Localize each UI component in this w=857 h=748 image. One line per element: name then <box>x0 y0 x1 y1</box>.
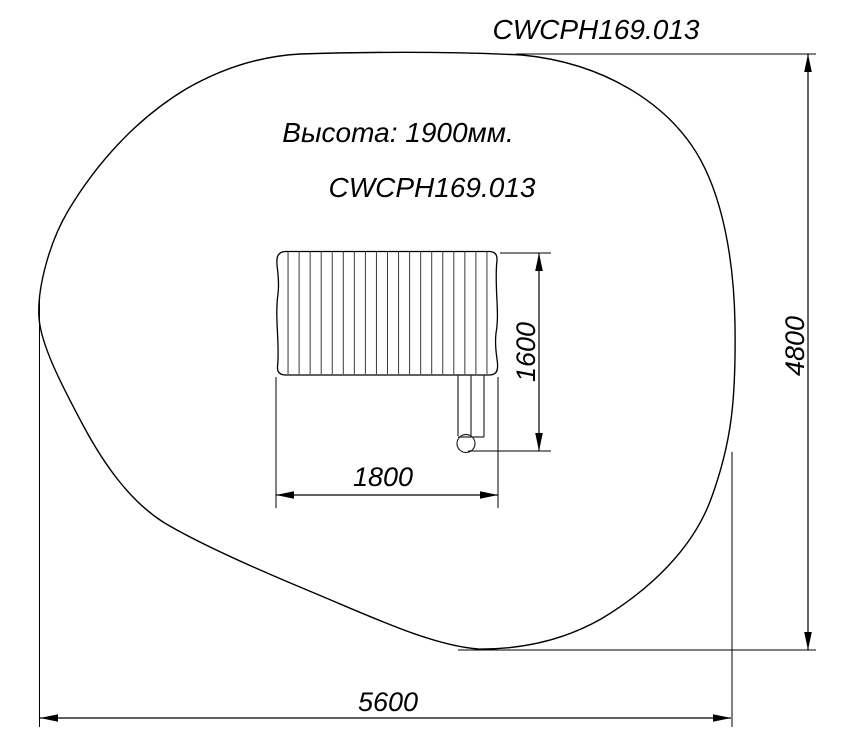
arrow-1600-up <box>535 253 543 271</box>
arrow-4800-down <box>804 632 812 650</box>
arrow-1800-left <box>276 491 294 499</box>
arrow-5600-left <box>40 714 58 722</box>
dimension-lines <box>40 54 812 722</box>
extension-lines <box>40 54 817 727</box>
drawing-code-center: CWCPH169.013 <box>329 172 536 203</box>
arrow-4800-up <box>804 54 812 72</box>
pole-attachment <box>457 375 484 453</box>
dim-label-1800: 1800 <box>353 462 413 492</box>
height-note: Высота: 1900мм. <box>282 117 513 148</box>
arrow-1800-right <box>480 491 498 499</box>
dim-label-5600: 5600 <box>358 687 418 717</box>
arrow-1600-down <box>535 433 543 451</box>
equipment-top-view <box>277 252 498 453</box>
dim-label-1600: 1600 <box>511 322 541 382</box>
dim-label-4800: 4800 <box>780 316 810 376</box>
technical-drawing-page: CWCPH169.013 Высота: 1900мм. CWCPH169.01… <box>0 0 857 748</box>
safety-zone-plan-svg: CWCPH169.013 Высота: 1900мм. CWCPH169.01… <box>0 0 857 748</box>
equipment-slats <box>288 252 487 374</box>
drawing-code-top: CWCPH169.013 <box>493 14 700 45</box>
arrow-5600-right <box>713 714 731 722</box>
